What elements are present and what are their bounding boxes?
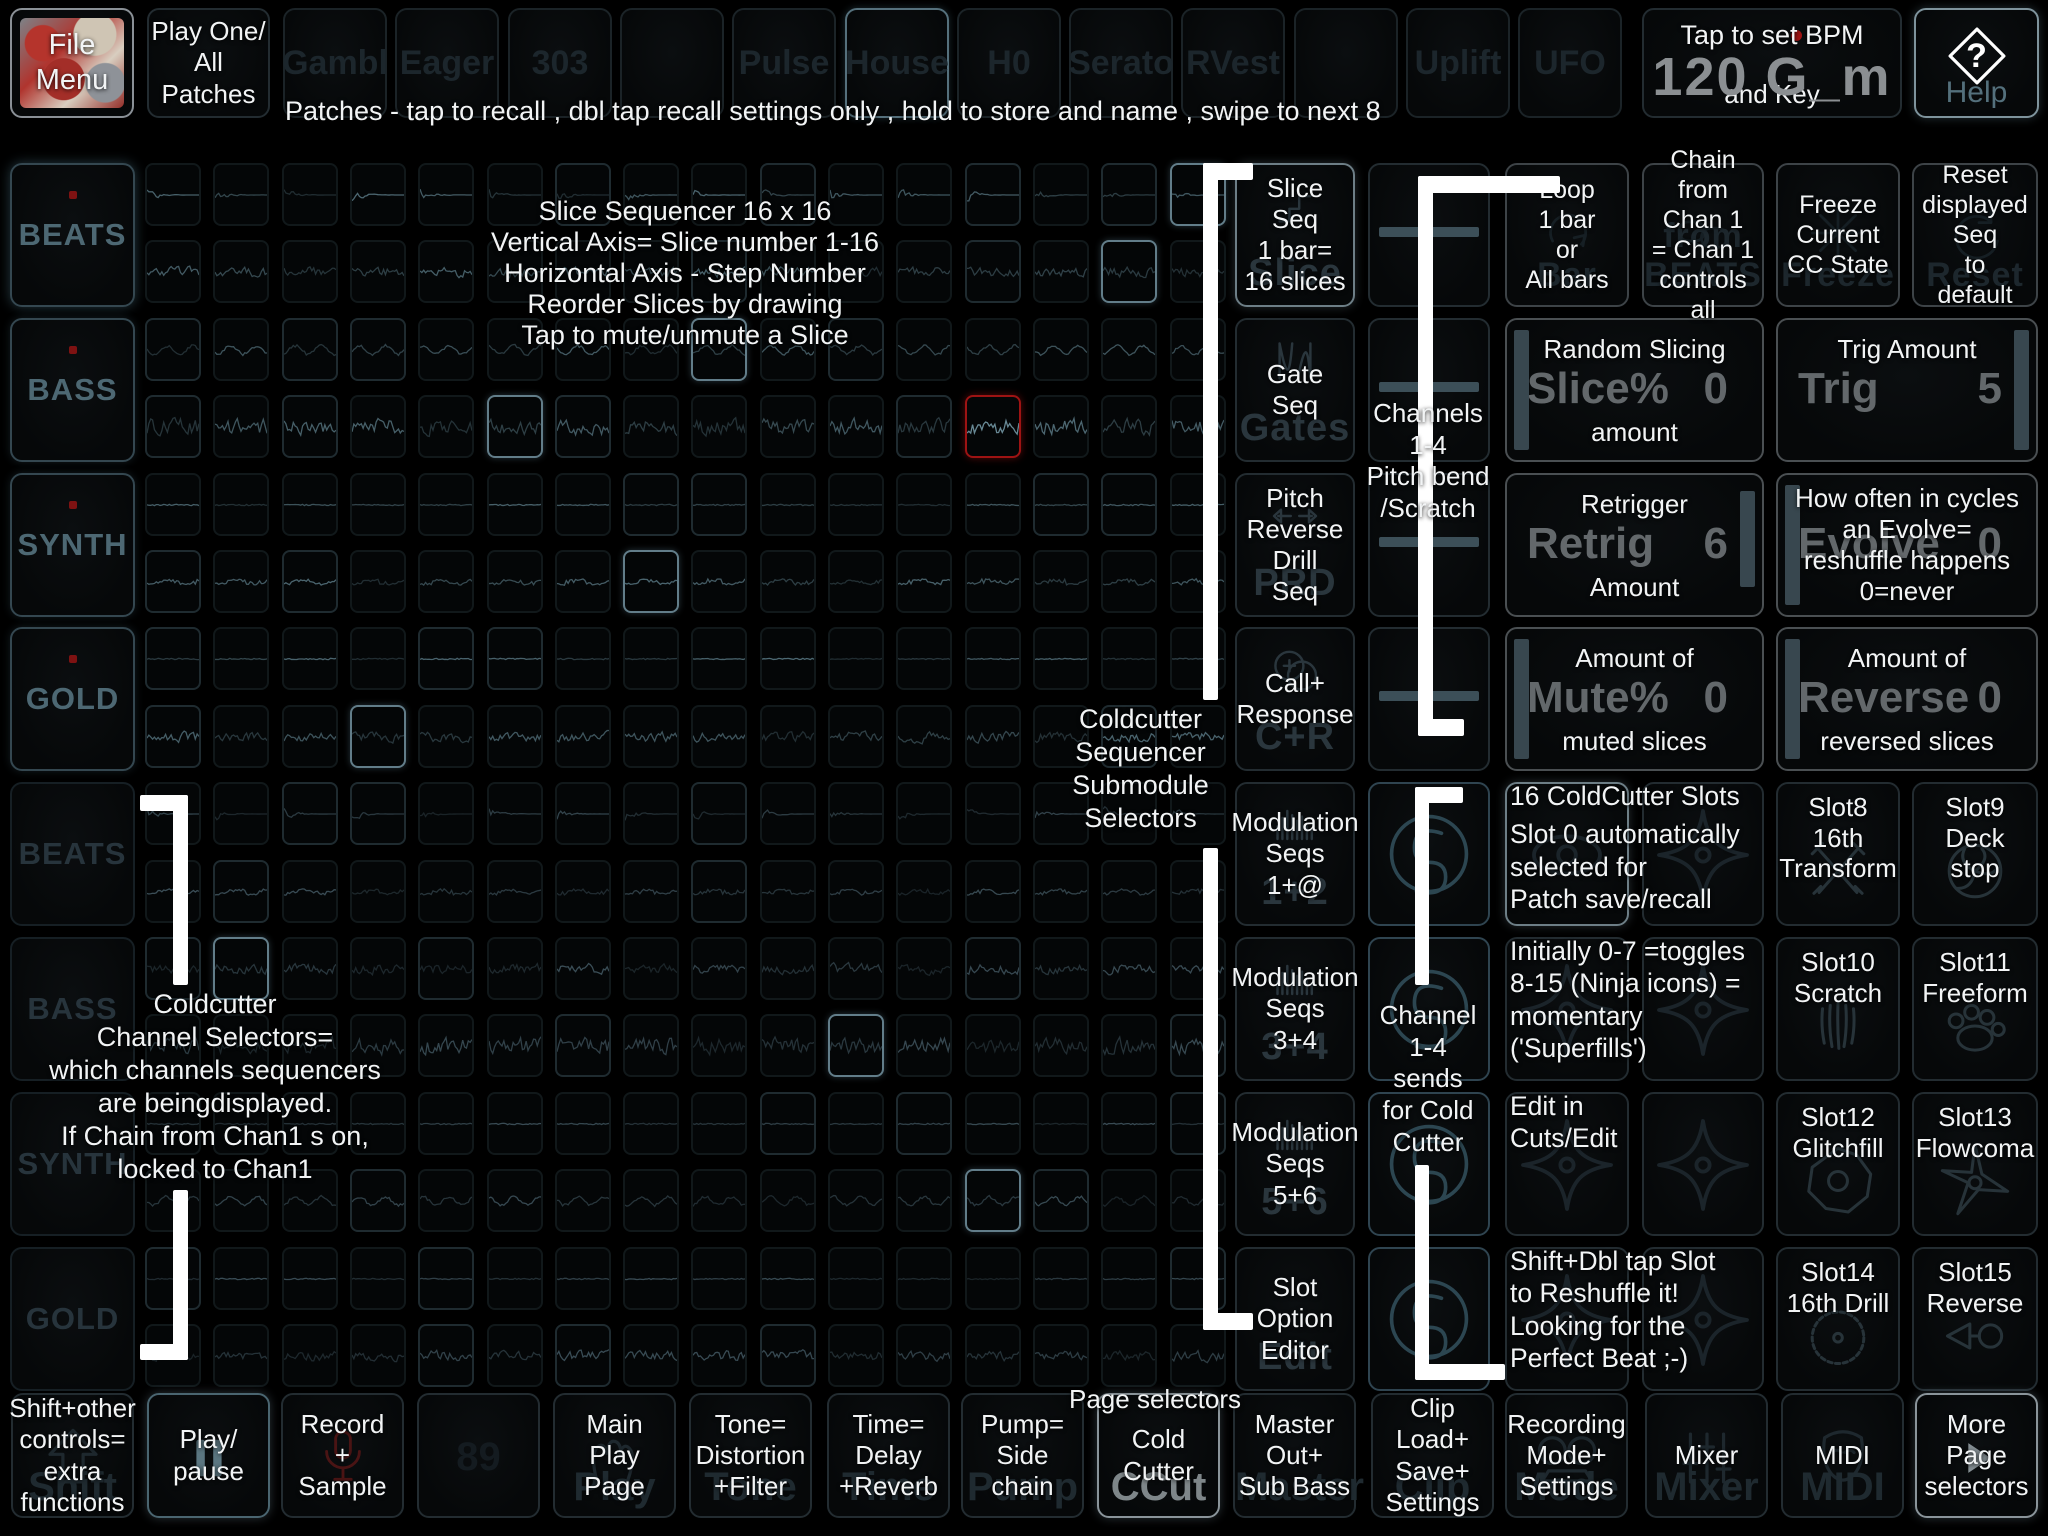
grid-cell-r5c14[interactable] — [1033, 473, 1089, 536]
grid-cell-r14c6[interactable] — [487, 1169, 543, 1232]
grid-cell-r8c8[interactable] — [623, 705, 679, 768]
grid-cell-r2c14[interactable] — [1033, 240, 1089, 303]
grid-cell-r8c13[interactable] — [965, 705, 1021, 768]
grid-cell-r6c9[interactable] — [691, 550, 747, 613]
grid-cell-r6c4[interactable] — [350, 550, 406, 613]
grid-cell-r9c12[interactable] — [896, 782, 952, 845]
grid-cell-r11c5[interactable] — [418, 937, 474, 1000]
freeze-cc-button[interactable]: FreezeFreezeCurrentCC State — [1776, 163, 1900, 307]
grid-cell-r10c10[interactable] — [760, 860, 816, 923]
grid-cell-r12c14[interactable] — [1033, 1014, 1089, 1077]
grid-cell-r13c5[interactable] — [418, 1092, 474, 1155]
grid-cell-r2c2[interactable] — [213, 240, 269, 303]
grid-cell-r6c10[interactable] — [760, 550, 816, 613]
grid-cell-r9c2[interactable] — [213, 782, 269, 845]
submodule-c-r[interactable]: C+RCall+Response — [1235, 627, 1355, 771]
grid-cell-r15c5[interactable] — [418, 1247, 474, 1310]
submodule-edit[interactable]: EditSlotOptionEditor — [1235, 1247, 1355, 1391]
grid-cell-r14c11[interactable] — [828, 1169, 884, 1232]
grid-cell-r11c12[interactable] — [896, 937, 952, 1000]
grid-cell-r7c5[interactable] — [418, 627, 474, 690]
grid-cell-r7c9[interactable] — [691, 627, 747, 690]
grid-cell-r4c7[interactable] — [555, 395, 611, 458]
grid-cell-r11c8[interactable] — [623, 937, 679, 1000]
bottom-button-recording-mode[interactable]: ModeRecordingMode+Settings — [1505, 1393, 1628, 1518]
submodule-prd[interactable]: PRDPitchReverseDrillSeq — [1235, 473, 1355, 617]
grid-cell-r13c15[interactable] — [1101, 1092, 1157, 1155]
grid-cell-r1c14[interactable] — [1033, 163, 1089, 226]
grid-cell-r4c13[interactable] — [965, 395, 1021, 458]
grid-cell-r4c4[interactable] — [350, 395, 406, 458]
grid-cell-r5c8[interactable] — [623, 473, 679, 536]
grid-cell-r6c12[interactable] — [896, 550, 952, 613]
panel-overlay-top: Random Slicing — [1507, 334, 1762, 365]
grid-cell-r7c11[interactable] — [828, 627, 884, 690]
grid-cell-r11c15[interactable] — [1101, 937, 1157, 1000]
grid-cell-r13c13[interactable] — [965, 1092, 1021, 1155]
bottom-button-mixer[interactable]: MixerMixer — [1645, 1393, 1768, 1518]
channel-selector-beats-2[interactable]: BEATS — [10, 782, 135, 926]
trig-panel[interactable]: Trig5Trig Amount — [1776, 318, 2038, 462]
bottom-button-shift[interactable]: ShiftShift+othercontrols=extrafunctions — [11, 1393, 134, 1518]
mute-panel[interactable]: Mute%0Amount ofmuted slices — [1505, 627, 1764, 771]
grid-cell-r9c7[interactable] — [555, 782, 611, 845]
grid-cell-r8c3[interactable] — [282, 705, 338, 768]
grid-cell-r9c13[interactable] — [965, 782, 1021, 845]
grid-cell-r14c12[interactable] — [896, 1169, 952, 1232]
grid-cell-r3c1[interactable] — [145, 318, 201, 381]
grid-cell-r8c12[interactable] — [896, 705, 952, 768]
bottom-button-tone[interactable]: ToneTone=Distortion+Filter — [689, 1393, 812, 1518]
grid-cell-r8c7[interactable] — [555, 705, 611, 768]
waveform — [693, 1249, 745, 1313]
waveform — [215, 165, 267, 229]
ghost-param-value: 5 — [1978, 364, 2002, 414]
submodule-5-6[interactable]: 5+6ModulationSeqs5+6 — [1235, 1092, 1355, 1236]
grid-cell-r16c11[interactable] — [828, 1324, 884, 1387]
submodule-overlay-label: PitchReverseDrillSeq — [1237, 475, 1353, 615]
bottom-button-time[interactable]: TimeTime=Delay+Reverb — [827, 1393, 950, 1518]
slot10-button[interactable]: Slot10Scratch — [1776, 937, 1900, 1081]
grid-cell-r10c9[interactable] — [691, 860, 747, 923]
waveform — [967, 1094, 1019, 1158]
panel-overlay-bottom: Amount — [1507, 572, 1762, 603]
grid-cell-r7c6[interactable] — [487, 627, 543, 690]
slot8-button[interactable]: Slot816thTransform — [1776, 782, 1900, 926]
grid-cell-r10c2[interactable] — [213, 860, 269, 923]
submodule-slice[interactable]: SliceSliceSeq1 bar=16 slices — [1235, 163, 1355, 307]
grid-cell-r12c8[interactable] — [623, 1014, 679, 1077]
grid-cell-r5c6[interactable] — [487, 473, 543, 536]
grid-cell-r15c12[interactable] — [896, 1247, 952, 1310]
waveform — [420, 1094, 472, 1158]
slot11-button[interactable]: Slot11Freeform — [1912, 937, 2038, 1081]
grid-cell-r3c14[interactable] — [1033, 318, 1089, 381]
channel-selector-beats-1[interactable]: BEATS — [10, 163, 135, 307]
grid-cell-r8c6[interactable] — [487, 705, 543, 768]
grid-cell-r9c6[interactable] — [487, 782, 543, 845]
grid-cell-r16c14[interactable] — [1033, 1324, 1089, 1387]
waveform — [352, 475, 404, 539]
waveform — [625, 784, 677, 848]
grid-cell-r16c12[interactable] — [896, 1324, 952, 1387]
grid-cell-r14c9[interactable] — [691, 1169, 747, 1232]
grid-cell-r7c4[interactable] — [350, 627, 406, 690]
grid-cell-r10c7[interactable] — [555, 860, 611, 923]
grid-cell-r16c10[interactable] — [760, 1324, 816, 1387]
waveform — [967, 242, 1019, 306]
grid-cell-r13c11[interactable] — [828, 1092, 884, 1155]
bottom-overlay-label: MasterOut+Sub Bass — [1235, 1395, 1354, 1516]
grid-cell-r2c4[interactable] — [350, 240, 406, 303]
grid-cell-r5c1[interactable] — [145, 473, 201, 536]
reset-seq-button[interactable]: ResetResetdisplayedSeqtodefault — [1912, 163, 2038, 307]
grid-cell-r16c15[interactable] — [1101, 1324, 1157, 1387]
grid-cell-r12c13[interactable] — [965, 1014, 1021, 1077]
grid-cell-r14c14[interactable] — [1033, 1169, 1089, 1232]
grid-cell-r10c8[interactable] — [623, 860, 679, 923]
grid-cell-r14c7[interactable] — [555, 1169, 611, 1232]
ghost-param-value: 6 — [1704, 519, 1728, 569]
grid-cell-r6c3[interactable] — [282, 550, 338, 613]
bpm-value: 120 G_m — [1644, 46, 1900, 108]
submodule-3-4[interactable]: 3+4ModulationSeqs3+4 — [1235, 937, 1355, 1081]
waveform — [284, 320, 336, 384]
grid-cell-r10c3[interactable] — [282, 860, 338, 923]
bottom-button-play-pause[interactable]: Play/pause — [147, 1393, 270, 1518]
grid-cell-r6c11[interactable] — [828, 550, 884, 613]
waveform — [215, 1249, 267, 1313]
grid-cell-r10c6[interactable] — [487, 860, 543, 923]
grid-cell-r16c9[interactable] — [691, 1324, 747, 1387]
grid-cell-r15c8[interactable] — [623, 1247, 679, 1310]
grid-cell-r8c1[interactable] — [145, 705, 201, 768]
grid-cell-r11c10[interactable] — [760, 937, 816, 1000]
grid-cell-r5c13[interactable] — [965, 473, 1021, 536]
grid-cell-r1c15[interactable] — [1101, 163, 1157, 226]
chain-from-chan1-button[interactable]: from BEATSChainfromChan 1= Chan 1control… — [1642, 163, 1764, 307]
slot14-button[interactable]: Slot1416th Drill — [1776, 1247, 1900, 1391]
help-button[interactable]: ? Help — [1914, 8, 2039, 118]
grid-cell-r16c8[interactable] — [623, 1324, 679, 1387]
grid-cell-r10c11[interactable] — [828, 860, 884, 923]
grid-cell-r5c7[interactable] — [555, 473, 611, 536]
grid-cell-r7c1[interactable] — [145, 627, 201, 690]
grid-cell-r5c3[interactable] — [282, 473, 338, 536]
slot-row-note-3: Edit inCuts/Edit — [1510, 1090, 1766, 1155]
grid-cell-r5c4[interactable] — [350, 473, 406, 536]
bottom-button-clip[interactable]: ClipClipLoad+Save+Settings — [1371, 1393, 1494, 1518]
grid-cell-r16c6[interactable] — [487, 1324, 543, 1387]
grid-cell-r11c7[interactable] — [555, 937, 611, 1000]
slot15-button[interactable]: Slot15Reverse — [1912, 1247, 2038, 1391]
grid-cell-r5c9[interactable] — [691, 473, 747, 536]
grid-cell-r13c9[interactable] — [691, 1092, 747, 1155]
waveform — [898, 1016, 950, 1080]
grid-cell-r6c8[interactable] — [623, 550, 679, 613]
grid-cell-r6c6[interactable] — [487, 550, 543, 613]
grid-cell-r13c12[interactable] — [896, 1092, 952, 1155]
grid-cell-r8c10[interactable] — [760, 705, 816, 768]
grid-cell-r6c5[interactable] — [418, 550, 474, 613]
waveform — [967, 1171, 1019, 1235]
grid-cell-r9c3[interactable] — [282, 782, 338, 845]
channel-selector-gold-2[interactable]: GOLD — [10, 1247, 135, 1391]
grid-cell-r6c14[interactable] — [1033, 550, 1089, 613]
grid-cell-r15c10[interactable] — [760, 1247, 816, 1310]
grid-cell-r11c6[interactable] — [487, 937, 543, 1000]
grid-annotation: Slice Sequencer 16 x 16Vertical Axis= Sl… — [450, 196, 920, 351]
grid-cell-r12c9[interactable] — [691, 1014, 747, 1077]
panel-overlay-bottom: amount — [1507, 417, 1762, 448]
grid-cell-r4c2[interactable] — [213, 395, 269, 458]
grid-cell-r11c11[interactable] — [828, 937, 884, 1000]
waveform — [557, 939, 609, 1003]
grid-cell-r5c10[interactable] — [760, 473, 816, 536]
grid-cell-r3c13[interactable] — [965, 318, 1021, 381]
grid-cell-r11c9[interactable] — [691, 937, 747, 1000]
grid-cell-r7c3[interactable] — [282, 627, 338, 690]
grid-cell-r15c7[interactable] — [555, 1247, 611, 1310]
grid-cell-r16c7[interactable] — [555, 1324, 611, 1387]
grid-cell-r5c12[interactable] — [896, 473, 952, 536]
grid-cell-r2c1[interactable] — [145, 240, 201, 303]
play-one-all-button[interactable]: Play One/AllPatches — [147, 8, 270, 118]
evolve-panel[interactable]: Evolve0How often in cyclesan Evolve=resh… — [1776, 473, 2038, 617]
grid-cell-r1c4[interactable] — [350, 163, 406, 226]
bracket-sends-bottom-arm — [1415, 1364, 1505, 1380]
grid-cell-r12c11[interactable] — [828, 1014, 884, 1077]
channel-selector-bass-1[interactable]: BASS — [10, 318, 135, 462]
waveform — [284, 475, 336, 539]
grid-cell-r4c3[interactable] — [282, 395, 338, 458]
bottom-overlay-label: MorePageselectors — [1917, 1395, 2036, 1516]
grid-cell-r3c4[interactable] — [350, 318, 406, 381]
grid-cell-r16c2[interactable] — [213, 1324, 269, 1387]
grid-cell-r4c8[interactable] — [623, 395, 679, 458]
grid-cell-r14c15[interactable] — [1101, 1169, 1157, 1232]
waveform — [625, 1016, 677, 1080]
waveform — [284, 784, 336, 848]
grid-cell-r9c11[interactable] — [828, 782, 884, 845]
grid-cell-r7c14[interactable] — [1033, 627, 1089, 690]
retrig-panel[interactable]: Retrig6RetriggerAmount — [1505, 473, 1764, 617]
waveform — [898, 862, 950, 926]
grid-cell-r16c3[interactable] — [282, 1324, 338, 1387]
grid-cell-r14c10[interactable] — [760, 1169, 816, 1232]
grid-cell-r7c8[interactable] — [623, 627, 679, 690]
grid-cell-r6c7[interactable] — [555, 550, 611, 613]
waveform — [762, 1326, 814, 1390]
grid-cell-r5c15[interactable] — [1101, 473, 1157, 536]
grid-cell-r11c14[interactable] — [1033, 937, 1089, 1000]
bpm-display[interactable]: Tap to set BPM 120 G_m and Key — [1642, 8, 1902, 118]
grid-cell-r14c5[interactable] — [418, 1169, 474, 1232]
grid-cell-r11c13[interactable] — [965, 937, 1021, 1000]
grid-cell-r15c9[interactable] — [691, 1247, 747, 1310]
grid-cell-r12c7[interactable] — [555, 1014, 611, 1077]
grid-cell-r6c15[interactable] — [1101, 550, 1157, 613]
grid-cell-r6c13[interactable] — [965, 550, 1021, 613]
grid-cell-r6c2[interactable] — [213, 550, 269, 613]
bottom-overlay-label: Record+Sample — [283, 1395, 402, 1516]
grid-cell-r3c2[interactable] — [213, 318, 269, 381]
submodule-1-2[interactable]: 1+2ModulationSeqs1+@ — [1235, 782, 1355, 926]
grid-cell-r12c15[interactable] — [1101, 1014, 1157, 1077]
waveform — [147, 552, 199, 616]
grid-cell-r2c13[interactable] — [965, 240, 1021, 303]
grid-cell-r9c5[interactable] — [418, 782, 474, 845]
grid-cell-r10c14[interactable] — [1033, 860, 1089, 923]
grid-cell-r7c2[interactable] — [213, 627, 269, 690]
reverse-panel[interactable]: Reverse0Amount ofreversed slices — [1776, 627, 2038, 771]
channels-1-4-caption: Channels1-4Pitch bend/Scratch — [1352, 398, 1504, 525]
bottom-overlay-label: ClipLoad+Save+Settings — [1373, 1395, 1492, 1516]
waveform — [967, 397, 1019, 461]
grid-cell-r13c7[interactable] — [555, 1092, 611, 1155]
grid-cell-r4c1[interactable] — [145, 395, 201, 458]
grid-cell-r4c9[interactable] — [691, 395, 747, 458]
grid-cell-r12c6[interactable] — [487, 1014, 543, 1077]
grid-cell-r6c1[interactable] — [145, 550, 201, 613]
grid-cell-r9c4[interactable] — [350, 782, 406, 845]
grid-cell-r13c8[interactable] — [623, 1092, 679, 1155]
grid-cell-r15c15[interactable] — [1101, 1247, 1157, 1310]
waveform — [489, 397, 541, 461]
grid-cell-r16c13[interactable] — [965, 1324, 1021, 1387]
grid-cell-r16c16[interactable] — [1170, 1324, 1226, 1387]
grid-cell-r7c7[interactable] — [555, 627, 611, 690]
grid-cell-r10c12[interactable] — [896, 860, 952, 923]
grid-cell-r5c5[interactable] — [418, 473, 474, 536]
waveform — [420, 475, 472, 539]
grid-cell-r12c5[interactable] — [418, 1014, 474, 1077]
grid-cell-r15c3[interactable] — [282, 1247, 338, 1310]
grid-cell-r5c11[interactable] — [828, 473, 884, 536]
grid-cell-r10c13[interactable] — [965, 860, 1021, 923]
bottom-overlay-label: MainPlayPage — [555, 1395, 674, 1516]
waveform — [967, 1249, 1019, 1313]
grid-cell-r12c12[interactable] — [896, 1014, 952, 1077]
grid-cell-r1c2[interactable] — [213, 163, 269, 226]
submodule-note: ColdcutterSequencerSubmoduleSelectors — [1048, 703, 1233, 835]
grid-cell-r10c5[interactable] — [418, 860, 474, 923]
channel-selector-gold-1[interactable]: GOLD — [10, 627, 135, 771]
grid-cell-r7c12[interactable] — [896, 627, 952, 690]
grid-cell-r9c10[interactable] — [760, 782, 816, 845]
panel-overlay-bottom: muted slices — [1507, 726, 1762, 757]
grid-cell-r8c4[interactable] — [350, 705, 406, 768]
panel-ghost-value: Slice%0 — [1527, 364, 1728, 414]
bottom-button-record-sample[interactable]: Record+Sample — [281, 1393, 404, 1518]
bottom-button-main-play-page[interactable]: PlayMainPlayPage — [553, 1393, 676, 1518]
grid-cell-r15c4[interactable] — [350, 1247, 406, 1310]
grid-cell-r2c15[interactable] — [1101, 240, 1157, 303]
waveform — [352, 629, 404, 693]
panel-ghost-value: Mute%0 — [1527, 673, 1728, 723]
grid-cell-r2c3[interactable] — [282, 240, 338, 303]
grid-cell-r5c2[interactable] — [213, 473, 269, 536]
grid-cell-r8c5[interactable] — [418, 705, 474, 768]
grid-cell-r3c15[interactable] — [1101, 318, 1157, 381]
grid-cell-r13c14[interactable] — [1033, 1092, 1089, 1155]
slice-panel[interactable]: Slice%0Random Slicingamount — [1505, 318, 1764, 462]
grid-cell-r15c2[interactable] — [213, 1247, 269, 1310]
grid-cell-r1c13[interactable] — [965, 163, 1021, 226]
grid-cell-r3c3[interactable] — [282, 318, 338, 381]
grid-cell-r4c5[interactable] — [418, 395, 474, 458]
grid-cell-r4c15[interactable] — [1101, 395, 1157, 458]
page-selectors-label: Page selectors — [1060, 1384, 1250, 1416]
coldcutter-send-channel-1[interactable] — [1368, 782, 1490, 926]
file-menu-button[interactable]: File Menu — [10, 8, 134, 118]
waveform — [1103, 1326, 1155, 1390]
bottom-button-pad-89[interactable]: 89 — [417, 1393, 540, 1518]
grid-cell-r14c8[interactable] — [623, 1169, 679, 1232]
waveform — [830, 1094, 882, 1158]
waveform — [898, 784, 950, 848]
grid-cell-r12c10[interactable] — [760, 1014, 816, 1077]
grid-cell-r8c9[interactable] — [691, 705, 747, 768]
waveform — [693, 1016, 745, 1080]
bottom-button-master[interactable]: MasterMasterOut+Sub Bass — [1233, 1393, 1356, 1518]
waveform — [1103, 242, 1155, 306]
grid-cell-r1c3[interactable] — [282, 163, 338, 226]
waveform — [830, 475, 882, 539]
waveform — [1103, 939, 1155, 1003]
waveform — [420, 1249, 472, 1313]
grid-cell-r8c11[interactable] — [828, 705, 884, 768]
grid-cell-r16c5[interactable] — [418, 1324, 474, 1387]
grid-cell-r9c8[interactable] — [623, 782, 679, 845]
waveform — [284, 1249, 336, 1313]
grid-cell-r9c9[interactable] — [691, 782, 747, 845]
grid-cell-r7c13[interactable] — [965, 627, 1021, 690]
grid-cell-r4c6[interactable] — [487, 395, 543, 458]
grid-cell-r4c11[interactable] — [828, 395, 884, 458]
slot12-button[interactable]: Slot12Glitchfill — [1776, 1092, 1900, 1236]
grid-cell-r15c6[interactable] — [487, 1247, 543, 1310]
grid-cell-r16c4[interactable] — [350, 1324, 406, 1387]
grid-cell-r7c15[interactable] — [1101, 627, 1157, 690]
waveform — [557, 475, 609, 539]
bottom-button-midi[interactable]: MIDIMIDI — [1781, 1393, 1904, 1518]
grid-cell-r15c14[interactable] — [1033, 1247, 1089, 1310]
grid-cell-r15c13[interactable] — [965, 1247, 1021, 1310]
bottom-button-more-pages[interactable]: MorePageselectors — [1915, 1393, 2038, 1518]
waveform — [557, 784, 609, 848]
channel-selector-synth-1[interactable]: SYNTH — [10, 473, 135, 617]
grid-cell-r1c1[interactable] — [145, 163, 201, 226]
submodule-gates[interactable]: GatesGateSeq — [1235, 318, 1355, 462]
grid-cell-r10c15[interactable] — [1101, 860, 1157, 923]
grid-cell-r4c10[interactable] — [760, 395, 816, 458]
waveform — [830, 1016, 882, 1080]
waveform — [762, 707, 814, 771]
grid-cell-r14c13[interactable] — [965, 1169, 1021, 1232]
grid-cell-r13c6[interactable] — [487, 1092, 543, 1155]
waveform — [898, 707, 950, 771]
slot9-button[interactable]: Slot9Deckstop — [1912, 782, 2038, 926]
grid-cell-r10c4[interactable] — [350, 860, 406, 923]
grid-cell-r13c10[interactable] — [760, 1092, 816, 1155]
grid-cell-r7c10[interactable] — [760, 627, 816, 690]
grid-cell-r15c11[interactable] — [828, 1247, 884, 1310]
slot13-button[interactable]: Slot13Flowcoma — [1912, 1092, 2038, 1236]
grid-cell-r4c12[interactable] — [896, 395, 952, 458]
grid-cell-r4c14[interactable] — [1033, 395, 1089, 458]
grid-cell-r8c2[interactable] — [213, 705, 269, 768]
